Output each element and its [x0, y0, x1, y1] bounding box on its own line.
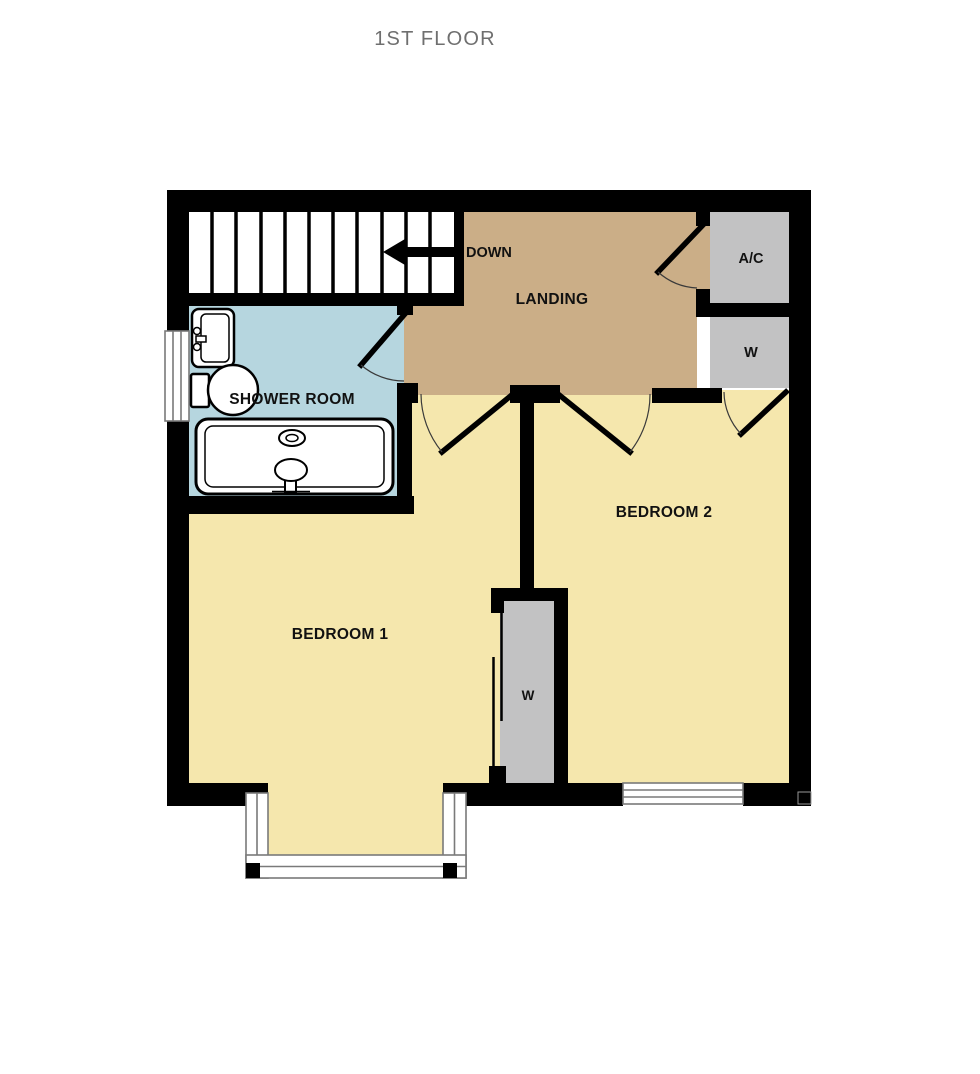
stairs-down-label: DOWN	[466, 245, 512, 261]
wall-segment	[167, 496, 414, 514]
wall-segment	[167, 293, 463, 306]
page-title: 1ST FLOOR	[374, 28, 496, 50]
floor-plan-page: 1ST FLOOR DOWN LANDING SHOWER ROOM BEDRO…	[0, 0, 980, 1074]
wall-segment	[743, 783, 811, 806]
ac-closet-label: A/C	[739, 251, 765, 267]
bedroom-1-label: BEDROOM 1	[292, 626, 389, 643]
floor-plan-drawing: 1ST FLOOR DOWN LANDING SHOWER ROOM BEDRO…	[0, 0, 980, 1074]
closet-middle-label: W	[522, 688, 535, 703]
wall-segment	[167, 421, 189, 806]
bay-corner-post	[246, 863, 260, 878]
ac-doorway-floor	[697, 225, 710, 290]
bay-window-floor	[268, 783, 443, 855]
wall-segment	[167, 190, 189, 331]
bedroom-2-label: BEDROOM 2	[616, 504, 713, 521]
wall-segment	[443, 783, 466, 793]
wall-segment	[491, 588, 504, 613]
bay-corner-post	[443, 863, 457, 878]
wall-segment	[652, 388, 722, 403]
wall-segment	[520, 403, 534, 591]
wall-segment	[789, 190, 811, 806]
wall-segment	[466, 783, 623, 806]
wall-segment	[454, 210, 464, 306]
wall-segment	[397, 383, 412, 499]
window-bottom-right	[623, 783, 743, 804]
landing-floor-ext	[412, 306, 464, 395]
wall-segment	[696, 303, 790, 317]
wall-segment	[554, 588, 568, 783]
window-left	[165, 331, 189, 421]
wall-segment	[246, 783, 268, 793]
wall-segment	[167, 783, 246, 806]
closet-right-label: W	[744, 345, 758, 361]
shower-tray-icon	[196, 419, 393, 494]
sink-icon	[192, 309, 234, 367]
wall-segment	[167, 190, 811, 212]
wall-segment	[696, 289, 710, 305]
shower-room-label: SHOWER ROOM	[229, 391, 355, 408]
shower-doorway-floor	[404, 314, 413, 383]
landing-label: LANDING	[516, 291, 589, 308]
wall-segment	[510, 385, 560, 403]
wall-segment	[489, 766, 506, 783]
